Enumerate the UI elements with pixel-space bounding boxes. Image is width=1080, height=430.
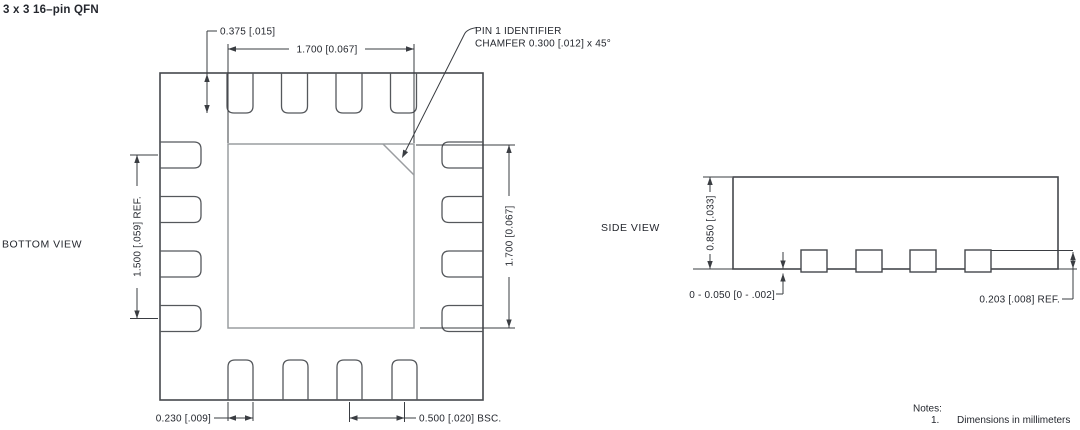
drawing-title: 3 x 3 16–pin QFN bbox=[3, 4, 99, 16]
dim-pad-height-label: 1.700 [0.067] bbox=[505, 205, 516, 266]
dim-standoff: 0 - 0.050 [0 - .002] bbox=[689, 252, 785, 301]
package-outline bbox=[160, 73, 483, 400]
dim-standoff-label: 0 - 0.050 [0 - .002] bbox=[689, 290, 775, 301]
bottom-view: BOTTOM VIEW bbox=[2, 26, 611, 425]
dim-pad-width: 1.700 [0.067] bbox=[228, 44, 414, 143]
dim-pad-width-label: 1.700 [0.067] bbox=[297, 45, 358, 56]
dim-pad-height: 1.700 [0.067] bbox=[416, 145, 516, 328]
dim-pitch-label: 0.500 [.020] BSC. bbox=[419, 414, 501, 425]
dim-body-height-label: 0.850 [.033] bbox=[706, 195, 717, 250]
note-1-number: 1. bbox=[931, 415, 939, 426]
dim-terminal-length: 0.375 [.015] bbox=[204, 27, 275, 114]
technical-drawing-svg: 3 x 3 16–pin QFN BOTTOM VIEW bbox=[0, 0, 1080, 430]
dim-terminal-width: 0.230 [.009] bbox=[156, 402, 253, 425]
dim-terminal-span: 1.500 [.059] REF. bbox=[130, 155, 158, 319]
pin1-callout: PIN 1 IDENTIFIER CHAMFER 0.300 [.012] x … bbox=[402, 26, 611, 158]
dim-terminal-length-label: 0.375 [.015] bbox=[220, 27, 275, 38]
top-pins bbox=[227, 73, 417, 113]
note-1-text: Dimensions in millimeters bbox=[957, 415, 1070, 426]
dim-terminal-width-label: 0.230 [.009] bbox=[156, 414, 211, 425]
side-view-label: SIDE VIEW bbox=[601, 222, 660, 234]
side-body-outline bbox=[733, 177, 1058, 269]
right-pins bbox=[442, 142, 483, 332]
dim-lead-thickness-label: 0.203 [.008] REF. bbox=[979, 295, 1060, 306]
left-pins bbox=[160, 142, 201, 332]
bottom-pins bbox=[228, 360, 417, 400]
pin1-callout-line2: CHAMFER 0.300 [.012] x 45° bbox=[475, 39, 611, 50]
notes-heading: Notes: bbox=[913, 404, 942, 415]
dim-lead-thickness: 0.203 [.008] REF. bbox=[979, 252, 1075, 306]
side-view: SIDE VIEW 0.850 [.033] bbox=[601, 177, 1077, 306]
thermal-pad bbox=[228, 144, 414, 328]
dim-terminal-span-label: 1.500 [.059] REF. bbox=[133, 196, 144, 277]
pin1-callout-line1: PIN 1 IDENTIFIER bbox=[475, 26, 562, 37]
bottom-view-label: BOTTOM VIEW bbox=[2, 239, 82, 251]
dim-pitch: 0.500 [.020] BSC. bbox=[350, 402, 502, 425]
notes: Notes: 1. Dimensions in millimeters bbox=[913, 404, 1070, 427]
qfn-package-drawing: 3 x 3 16–pin QFN BOTTOM VIEW bbox=[0, 0, 1080, 430]
dim-body-height: 0.850 [.033] bbox=[703, 177, 732, 269]
pin1-chamfer-line bbox=[383, 144, 414, 175]
